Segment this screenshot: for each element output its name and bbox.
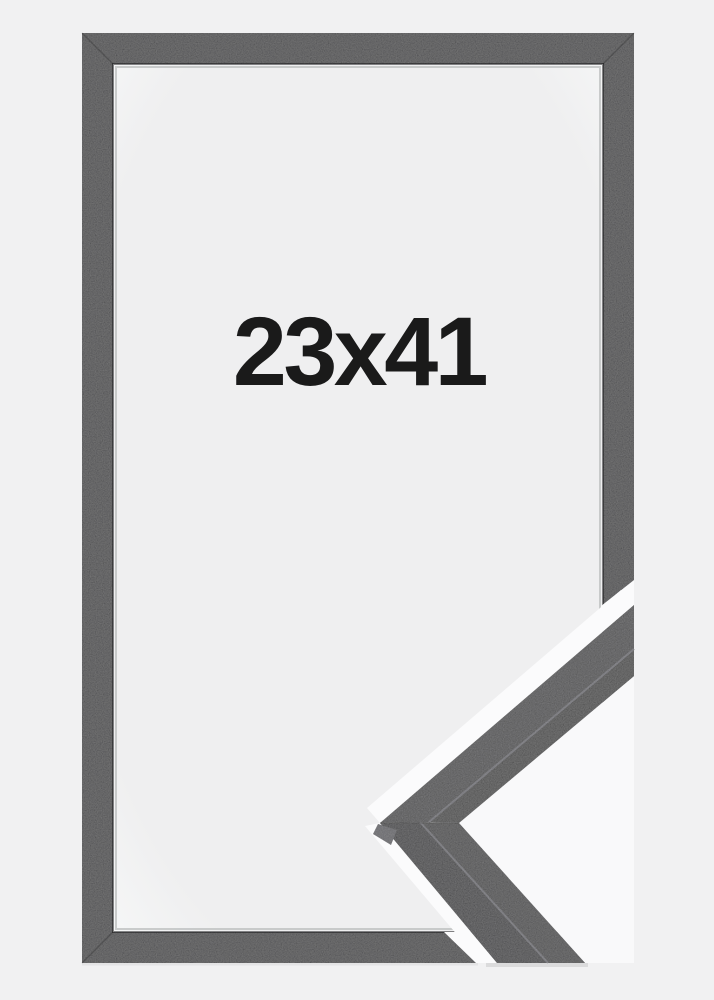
product-photo: 23x41 — [0, 0, 714, 1000]
bottom-bar-shadow — [82, 963, 478, 966]
size-label: 23x41 — [233, 297, 487, 406]
sample-clip-shadow — [486, 963, 588, 967]
frame-product-image: 23x41 — [0, 0, 714, 1000]
